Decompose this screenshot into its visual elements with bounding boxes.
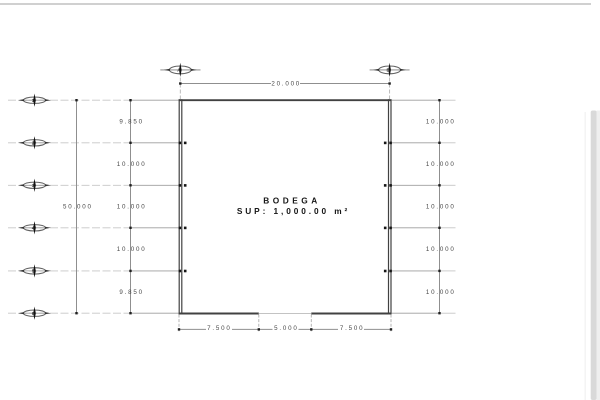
svg-text:10.000: 10.000 <box>117 203 147 210</box>
svg-text:1: 1 <box>32 98 35 103</box>
svg-text:10.000: 10.000 <box>426 246 456 253</box>
svg-text:2: 2 <box>32 141 35 146</box>
svg-text:10.000: 10.000 <box>426 289 456 296</box>
svg-text:4: 4 <box>32 226 35 231</box>
svg-text:10.000: 10.000 <box>117 161 147 168</box>
svg-text:5.000: 5.000 <box>274 325 298 332</box>
svg-text:10.000: 10.000 <box>426 118 456 125</box>
svg-text:20.000: 20.000 <box>271 81 301 88</box>
svg-text:5: 5 <box>32 269 35 274</box>
svg-text:10.000: 10.000 <box>426 203 456 210</box>
svg-text:10.000: 10.000 <box>117 246 147 253</box>
svg-text:6: 6 <box>32 311 35 316</box>
svg-text:3: 3 <box>32 183 35 188</box>
svg-text:10.000: 10.000 <box>426 161 456 168</box>
svg-text:7.500: 7.500 <box>340 325 364 332</box>
svg-text:50.000: 50.000 <box>63 204 93 211</box>
svg-text:9.850: 9.850 <box>119 118 143 125</box>
svg-text:SUP: 1,000.00 m²: SUP: 1,000.00 m² <box>237 206 350 216</box>
svg-text:7.500: 7.500 <box>207 325 231 332</box>
svg-text:9.850: 9.850 <box>119 289 143 296</box>
svg-text:BODEGA: BODEGA <box>263 195 320 205</box>
